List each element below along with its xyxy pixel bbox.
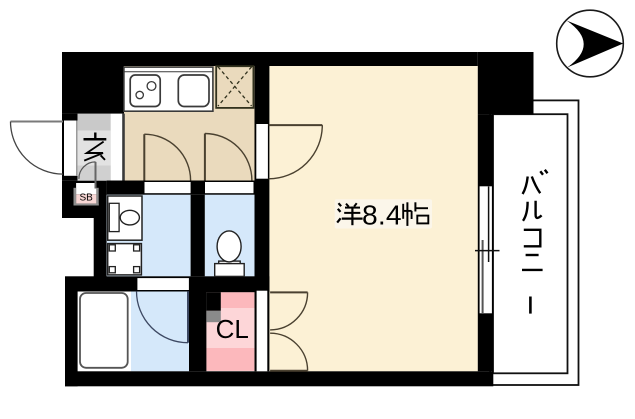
svg-text:8.4: 8.4 — [362, 198, 402, 230]
svg-text:CL: CL — [216, 314, 249, 344]
svg-text:SB: SB — [80, 193, 94, 204]
